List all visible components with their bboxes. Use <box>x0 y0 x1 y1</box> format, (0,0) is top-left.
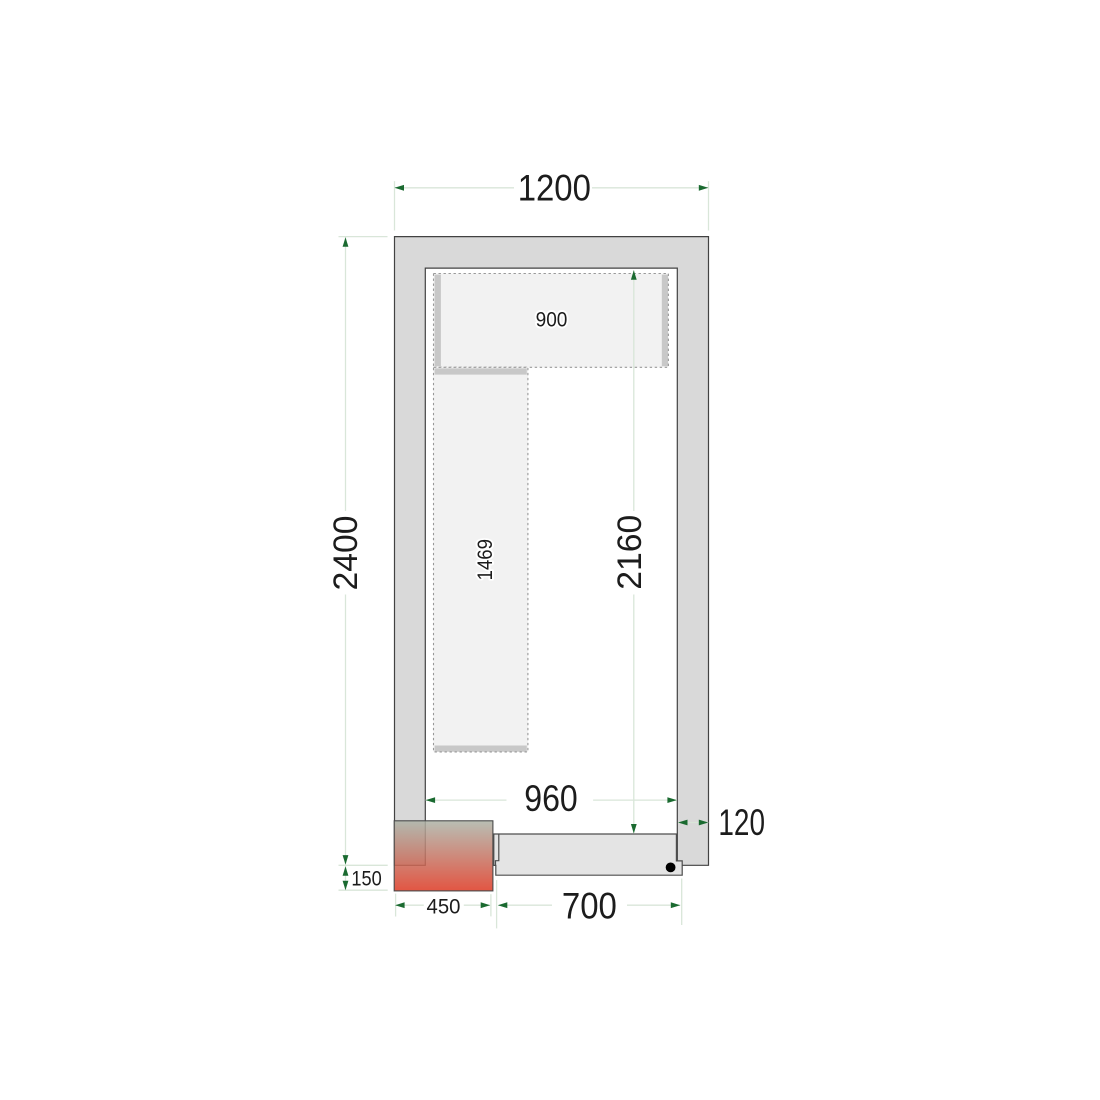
svg-text:700: 700 <box>562 886 617 927</box>
svg-text:960: 960 <box>524 778 578 819</box>
svg-text:120: 120 <box>718 802 765 843</box>
svg-text:450: 450 <box>427 896 461 919</box>
svg-text:2400: 2400 <box>327 516 365 591</box>
svg-text:900: 900 <box>536 309 568 332</box>
svg-text:1469: 1469 <box>473 539 497 580</box>
svg-text:2160: 2160 <box>611 515 649 590</box>
svg-text:150: 150 <box>351 868 381 891</box>
svg-text:1200: 1200 <box>518 168 591 209</box>
